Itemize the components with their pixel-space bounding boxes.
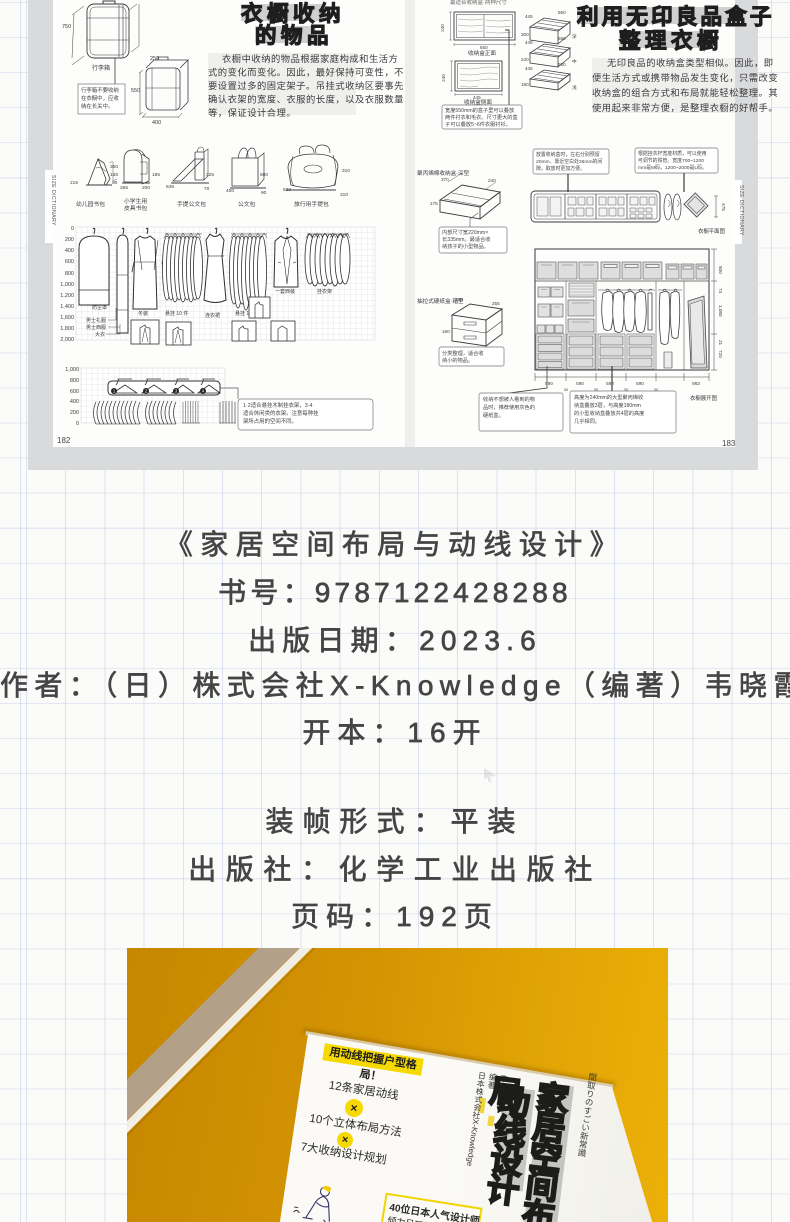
svg-text:183: 183 — [722, 439, 736, 448]
svg-text:皮具书包: 皮具书包 — [124, 204, 147, 212]
svg-text:21: 21 — [718, 340, 723, 346]
svg-text:连衣裙: 连衣裙 — [205, 312, 220, 319]
svg-text:一套西装: 一套西装 — [275, 288, 295, 295]
svg-text:500: 500 — [718, 266, 723, 274]
svg-text:手提公文包: 手提公文包 — [177, 200, 206, 208]
svg-text:可调节的铁管。宽度700~1200: 可调节的铁管。宽度700~1200 — [638, 157, 704, 164]
svg-text:550: 550 — [558, 10, 566, 15]
svg-text:250: 250 — [150, 56, 159, 62]
svg-text:240: 240 — [441, 74, 446, 82]
svg-text:600: 600 — [65, 259, 74, 265]
svg-text:590: 590 — [576, 381, 584, 386]
svg-text:1,000: 1,000 — [60, 282, 74, 288]
svg-text:350: 350 — [110, 164, 118, 170]
svg-text:600: 600 — [70, 389, 79, 395]
svg-text:使用起来非常方便，是整理衣橱的好帮手。: 使用起来非常方便，是整理衣橱的好帮手。 — [592, 102, 778, 113]
svg-text:内部尺寸宽220mm×: 内部尺寸宽220mm× — [442, 228, 488, 236]
svg-text:475: 475 — [721, 203, 726, 211]
svg-text:800: 800 — [70, 378, 79, 384]
svg-text:纳盒叠放3层，与高度180mm: 纳盒叠放3层，与高度180mm — [574, 401, 641, 409]
svg-text:收纳盒的组合方式和布局就能轻松整理。其: 收纳盒的组合方式和布局就能轻松整理。其 — [592, 87, 778, 98]
svg-text:宽度550mm的盒子里可以叠放: 宽度550mm的盒子里可以叠放 — [445, 106, 515, 114]
svg-text:1·2适合悬挂木制挂衣架，3·4: 1·2适合悬挂木制挂衣架，3·4 — [243, 401, 313, 409]
svg-text:最适合收纳盒·两种尺寸: 最适合收纳盒·两种尺寸 — [450, 0, 507, 6]
svg-text:630: 630 — [283, 187, 291, 193]
svg-text:行李箱不要收纳: 行李箱不要收纳 — [81, 86, 119, 94]
svg-text:1,080: 1,080 — [718, 305, 723, 317]
svg-text:800: 800 — [65, 271, 74, 277]
svg-text:200: 200 — [65, 237, 74, 243]
svg-text:325: 325 — [206, 172, 214, 178]
svg-text:445: 445 — [525, 14, 533, 19]
svg-text:550: 550 — [131, 88, 140, 94]
svg-text:纳孩子的小型物品。: 纳孩子的小型物品。 — [442, 242, 489, 250]
svg-text:963: 963 — [692, 381, 700, 386]
svg-text:550: 550 — [558, 62, 566, 67]
svg-text:几乎相同。: 几乎相同。 — [574, 417, 600, 425]
svg-text:185: 185 — [152, 172, 160, 178]
svg-text:行李箱: 行李箱 — [92, 64, 110, 72]
svg-text:370: 370 — [441, 177, 449, 182]
svg-text:182: 182 — [57, 436, 71, 445]
svg-text:衣橱中收纳的物品根据家庭构成和生活方: 衣橱中收纳的物品根据家庭构成和生活方 — [222, 53, 398, 64]
svg-text:590: 590 — [606, 381, 614, 386]
svg-text:等，保证设计合理。: 等，保证设计合理。 — [208, 107, 296, 118]
svg-text:式的变化而变化。因此，最好保持可变性，不: 式的变化而变化。因此，最好保持可变性，不 — [208, 67, 404, 78]
svg-text:要设置过多的固定架子。吊挂式收纳区要事先: 要设置过多的固定架子。吊挂式收纳区要事先 — [208, 80, 404, 91]
svg-text:645: 645 — [166, 184, 174, 190]
svg-text:浅: 浅 — [572, 84, 577, 90]
svg-text:720: 720 — [718, 350, 723, 358]
svg-text:的小型收纳盒叠放共4层的高度: 的小型收纳盒叠放共4层的高度 — [574, 409, 644, 417]
svg-text:纳在长关中。: 纳在长关中。 — [81, 102, 113, 110]
svg-text:便生活方式或携带物品发生变化，只需改变: 便生活方式或携带物品发生变化，只需改变 — [592, 72, 778, 83]
svg-text:挂衣架: 挂衣架 — [317, 288, 332, 295]
svg-text:子可以叠放5~6件衣服衬衫。: 子可以叠放5~6件衣服衬衫。 — [445, 120, 511, 128]
svg-text:1,600: 1,600 — [60, 315, 74, 321]
svg-text:小学生用: 小学生用 — [124, 197, 147, 205]
svg-text:200: 200 — [142, 185, 150, 191]
svg-text:255: 255 — [492, 301, 500, 306]
svg-text:265: 265 — [120, 185, 128, 191]
svg-text:2,000: 2,000 — [60, 337, 74, 343]
svg-text:中: 中 — [572, 58, 577, 65]
svg-text:品时，推荐使用灰色的: 品时，推荐使用灰色的 — [483, 403, 535, 411]
svg-text:硬纸盒。: 硬纸盒。 — [483, 411, 504, 419]
svg-text:240: 240 — [440, 24, 445, 32]
svg-text:1,200: 1,200 — [60, 293, 74, 299]
svg-text:高度为240mm的大型聚丙烯收: 高度为240mm的大型聚丙烯收 — [574, 393, 643, 401]
svg-text:0: 0 — [71, 226, 74, 232]
svg-text:SIZE DICTIONARY: SIZE DICTIONARY — [738, 185, 744, 236]
svg-text:400: 400 — [152, 120, 161, 126]
svg-text:400: 400 — [65, 248, 74, 254]
svg-text:310: 310 — [340, 192, 348, 198]
svg-text:550: 550 — [558, 36, 566, 41]
svg-text:400: 400 — [226, 188, 234, 194]
svg-text:590: 590 — [545, 381, 553, 386]
svg-text:放置收纳盒时，左右分别预留: 放置收纳盒时，左右分别预留 — [536, 151, 600, 158]
svg-text:在衣橱中，应收: 在衣橱中，应收 — [81, 94, 119, 102]
svg-text:无印良品的收纳盒类型相似。因此，即: 无印良品的收纳盒类型相似。因此，即 — [607, 57, 774, 68]
svg-text:445: 445 — [525, 66, 533, 71]
svg-text:悬挂 10 件: 悬挂 10 件 — [165, 310, 188, 317]
svg-text:长335mm。最适合收: 长335mm。最适合收 — [442, 235, 490, 243]
svg-text:男士礼服: 男士礼服 — [86, 317, 106, 324]
svg-text:90: 90 — [112, 180, 118, 186]
svg-text:30: 30 — [564, 387, 569, 392]
svg-text:冬装: 冬装 — [138, 310, 148, 317]
svg-text:1,800: 1,800 — [60, 326, 74, 332]
svg-text:400: 400 — [70, 399, 79, 405]
svg-text:200: 200 — [70, 410, 79, 416]
svg-text:590: 590 — [636, 381, 644, 386]
svg-text:70: 70 — [204, 186, 210, 192]
svg-text:360: 360 — [455, 297, 463, 302]
svg-text:445: 445 — [525, 40, 533, 45]
svg-text:收纳不想被人看到的物: 收纳不想被人看到的物 — [483, 395, 535, 403]
svg-text:架所占用的空间不同。: 架所占用的空间不同。 — [243, 417, 297, 425]
svg-text:男士西服: 男士西服 — [86, 324, 106, 331]
svg-text:300: 300 — [521, 32, 529, 37]
svg-text:幼儿园书包: 幼儿园书包 — [76, 200, 105, 208]
svg-text:550: 550 — [480, 45, 488, 50]
svg-text:纳小的物品。: 纳小的物品。 — [442, 356, 473, 364]
svg-text:SIZE DICTIONARY: SIZE DICTIONARY — [50, 175, 56, 226]
svg-text:155: 155 — [110, 172, 118, 178]
svg-text:衣橱平面图: 衣橱平面图 — [698, 227, 725, 235]
svg-text:隙，取放时更加方便。: 隙，取放时更加方便。 — [536, 165, 585, 172]
svg-text:深: 深 — [572, 33, 577, 40]
svg-text:750: 750 — [62, 24, 71, 30]
svg-text:215: 215 — [70, 180, 78, 186]
svg-text:根据挂衣杆宽度材质，可以使用: 根据挂衣杆宽度材质，可以使用 — [638, 150, 707, 157]
svg-text:175: 175 — [430, 201, 438, 206]
svg-text:mm是M码，1200~2000是L码。: mm是M码，1200~2000是L码。 — [638, 164, 707, 171]
svg-text:防尘罩: 防尘罩 — [92, 304, 107, 311]
svg-text:1,400: 1,400 — [60, 304, 74, 310]
svg-text:90: 90 — [261, 190, 267, 196]
svg-text:240: 240 — [488, 178, 496, 183]
svg-text:分类整理，适合收: 分类整理，适合收 — [442, 349, 484, 357]
svg-text:20mm、靠近空白处36mm的间: 20mm、靠近空白处36mm的间 — [536, 158, 602, 165]
svg-text:适合休闲类的衣架。注意每种挂: 适合休闲类的衣架。注意每种挂 — [243, 409, 319, 417]
svg-text:74: 74 — [718, 288, 723, 294]
svg-text:600: 600 — [260, 172, 268, 178]
svg-text:大衣: 大衣 — [95, 331, 105, 338]
svg-text:旅行用手提包: 旅行用手提包 — [294, 200, 329, 208]
svg-text:公文包: 公文包 — [238, 200, 256, 208]
svg-text:310: 310 — [342, 168, 350, 174]
svg-text:衣橱展开图: 衣橱展开图 — [690, 394, 717, 402]
svg-text:240: 240 — [521, 57, 529, 62]
svg-text:180: 180 — [521, 82, 529, 87]
svg-text:0: 0 — [76, 421, 79, 427]
svg-text:确认衣架的宽度、衣服的长度，以及衣服数量: 确认衣架的宽度、衣服的长度，以及衣服数量 — [208, 94, 404, 105]
svg-text:收纳盒正面: 收纳盒正面 — [468, 49, 496, 57]
svg-text:两件衬衣和毛衣。尺寸更大的盒: 两件衬衣和毛衣。尺寸更大的盒 — [445, 113, 518, 121]
svg-text:160: 160 — [442, 329, 450, 334]
svg-text:1,000: 1,000 — [65, 367, 79, 373]
